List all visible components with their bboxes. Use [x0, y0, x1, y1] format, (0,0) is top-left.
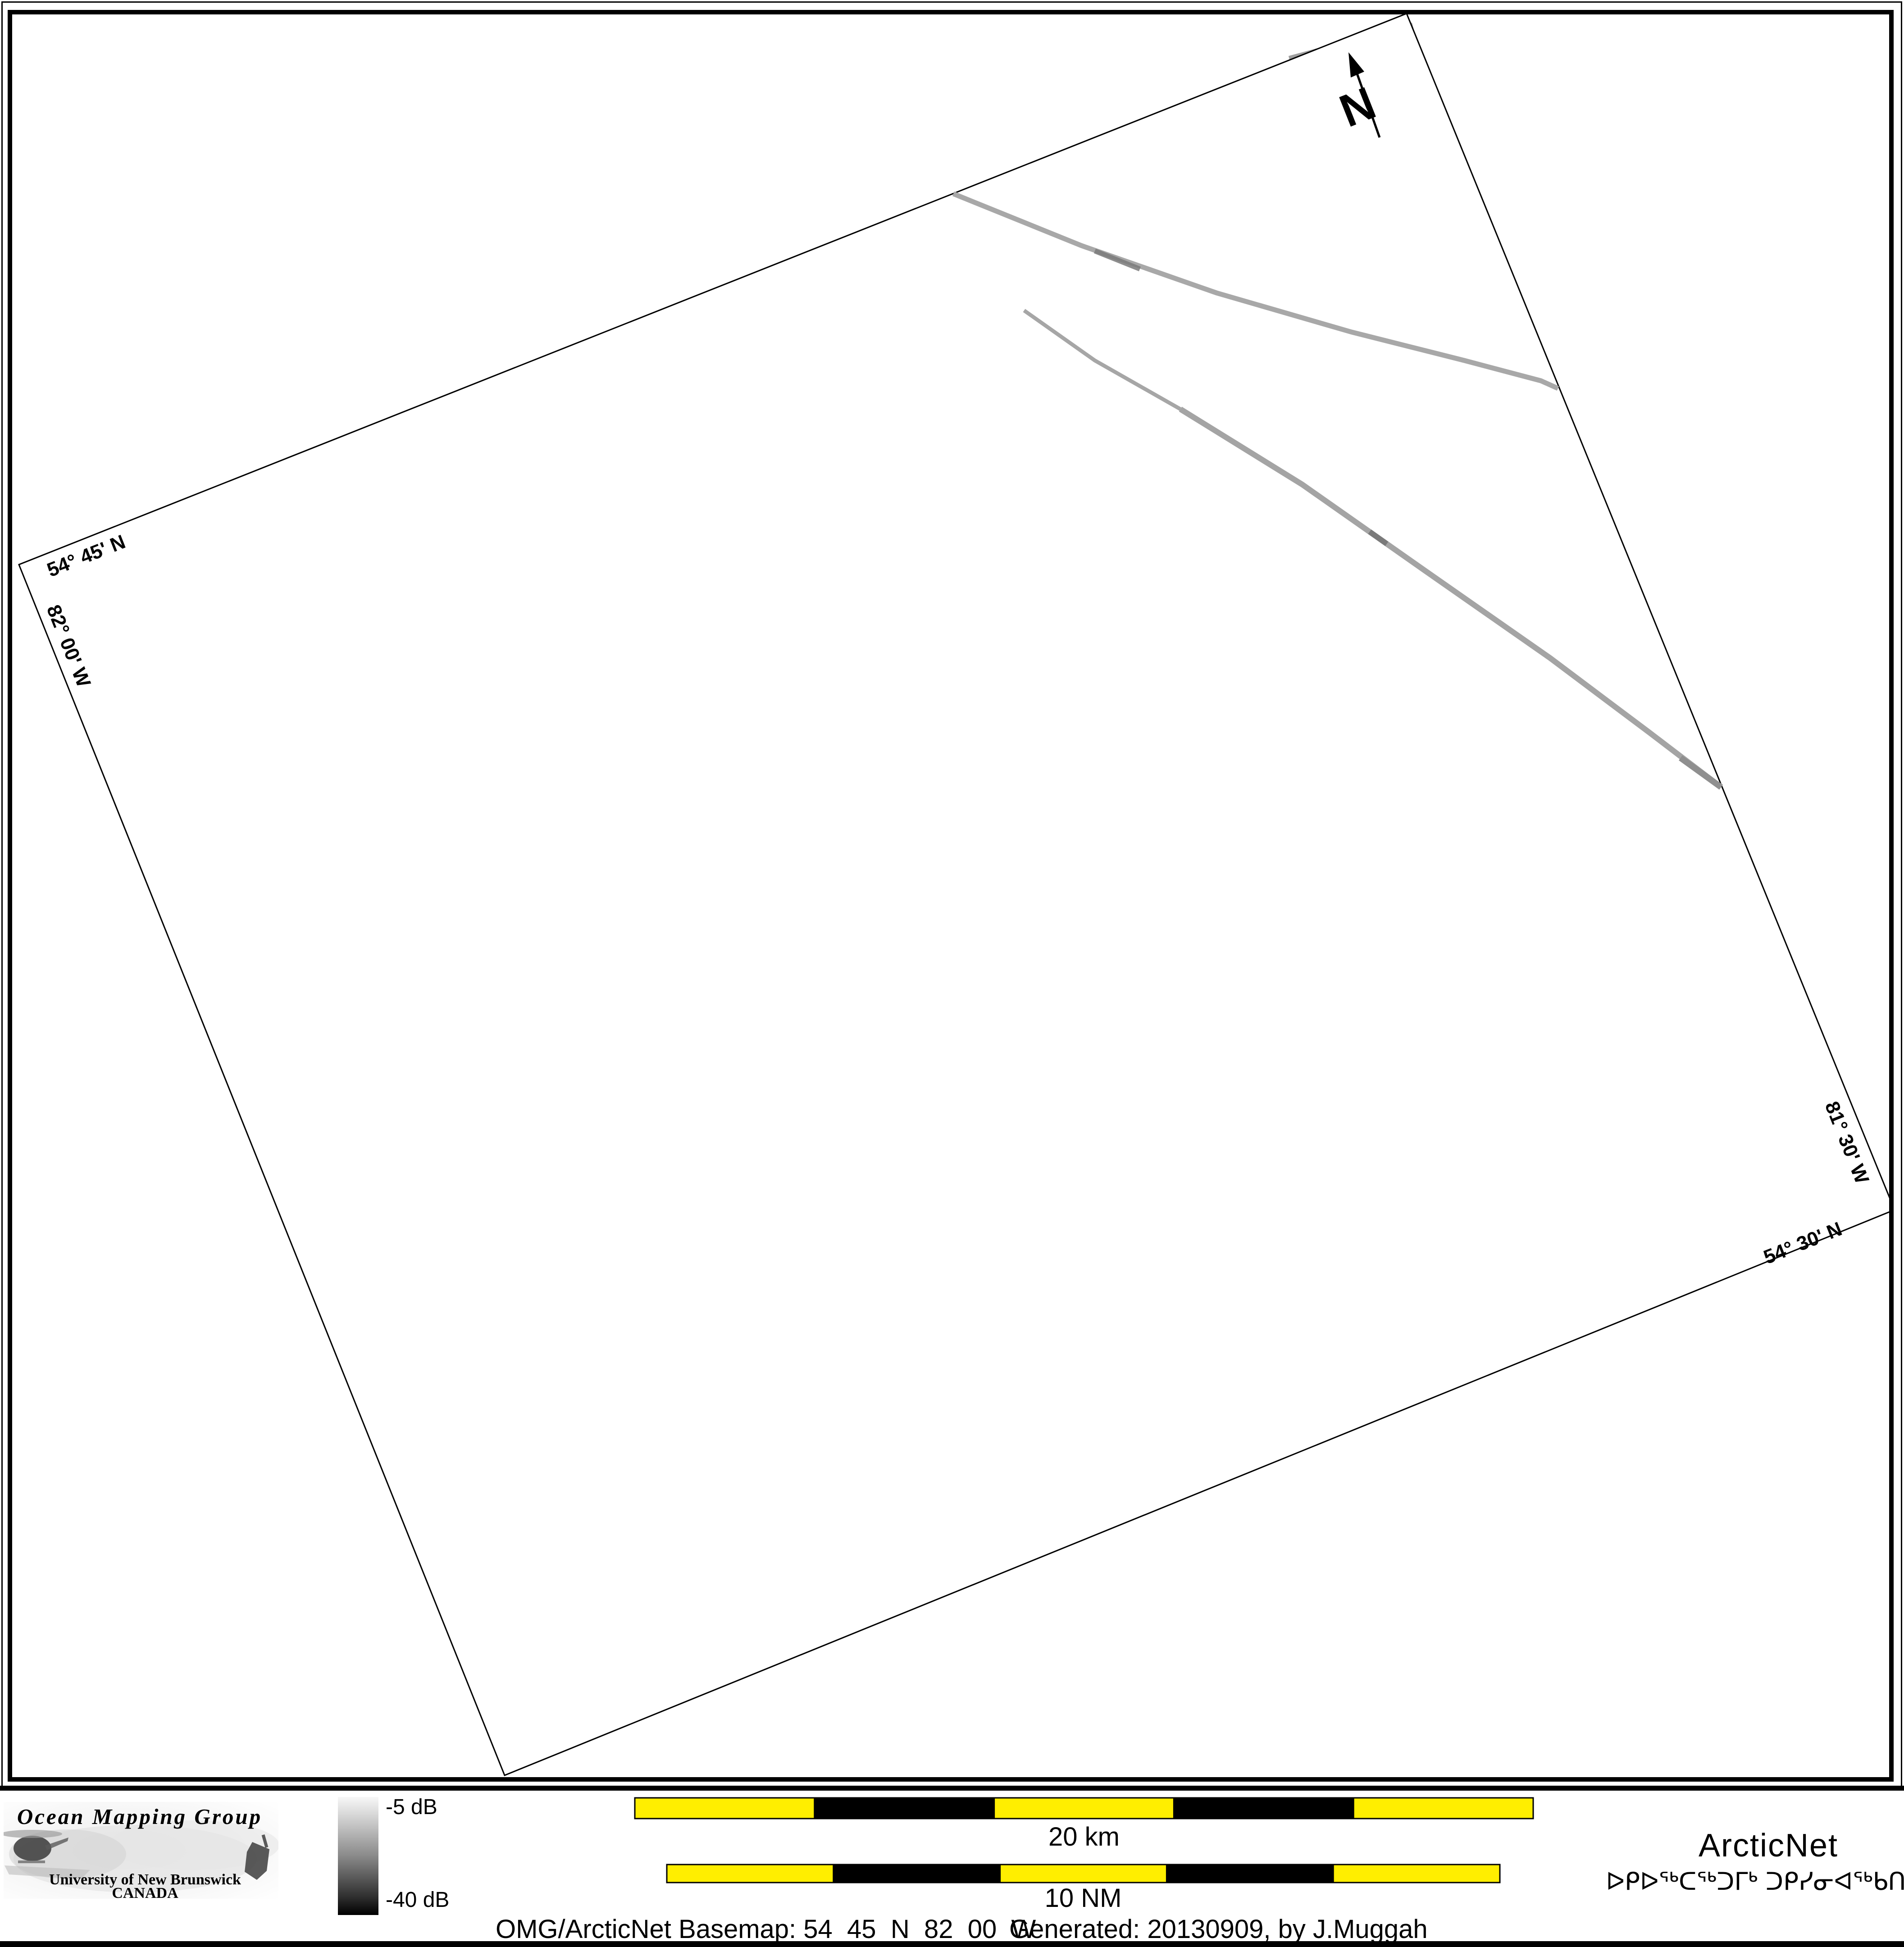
scalebar-segment [1353, 1798, 1533, 1819]
scalebar-segment [667, 1865, 834, 1883]
colorbar-gradient [338, 1797, 378, 1915]
footer-caption: OMG/ArcticNet Basemap: 54_45_N_82_00_W G… [496, 1915, 1428, 1944]
bottom-border-band [0, 1941, 1904, 1947]
arcticnet-logo-inuktitut: ᐅᑭᐅᖅᑕᖅᑐᒥᒃ ᑐᑭᓯᓂᐊᖅᑲᑎᒌᑦ [1606, 1867, 1904, 1896]
caption-generated: Generated: 20130909, by J.Muggah [1009, 1915, 1428, 1944]
omg-logo-title: Ocean Mapping Group [17, 1804, 262, 1829]
scalebar-segment [635, 1798, 815, 1819]
omg-logo: Ocean Mapping Group University of New Br… [1, 1802, 279, 1901]
omg-logo-country: CANADA [112, 1885, 178, 1901]
scalebar-segment [994, 1798, 1174, 1819]
basemap-page: N 54° 45' N 82° 00' W 81° 30' W 54° 30' … [0, 0, 1904, 1947]
caption-basemap: OMG/ArcticNet Basemap: 54_45_N_82_00_W [496, 1915, 1036, 1944]
footer-separator-rule [0, 1786, 1904, 1791]
colorbar-min-label: -40 dB [386, 1888, 449, 1912]
scalebar-segment [1000, 1865, 1167, 1883]
arcticnet-logo-name: ArcticNet [1699, 1828, 1838, 1864]
colorbar-max-label: -5 dB [386, 1795, 437, 1819]
scalebar-km-label: 20 km [1048, 1822, 1120, 1851]
scalebar-segment [1333, 1865, 1500, 1883]
scalebar-nm-label: 10 NM [1045, 1883, 1122, 1913]
